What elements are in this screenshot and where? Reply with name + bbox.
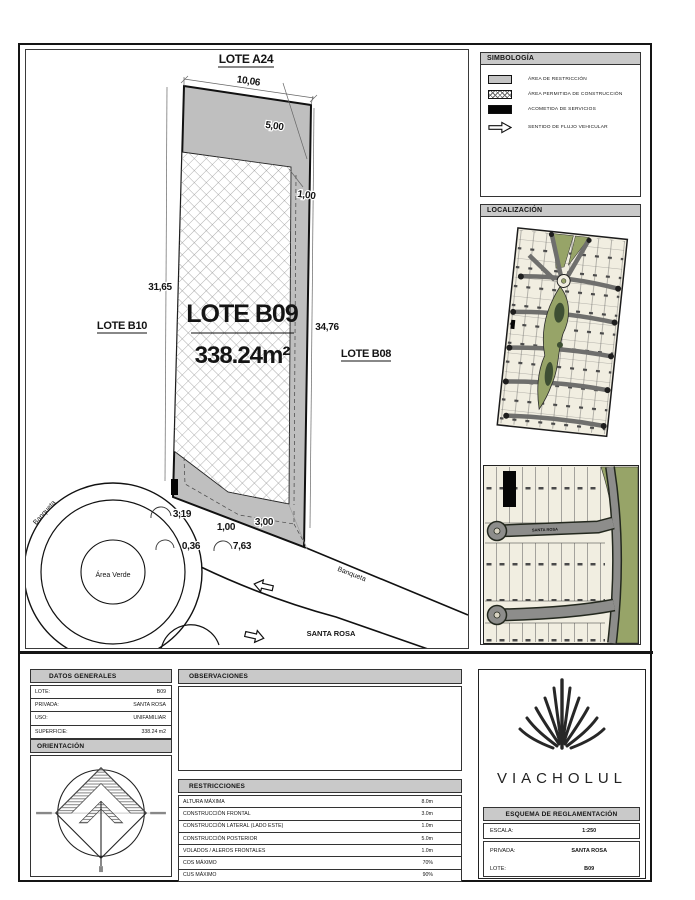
table-row: CONSTRUCCIÓN FRONTAL 3.0m bbox=[179, 808, 461, 820]
row-label: LOTE: bbox=[31, 689, 50, 695]
row-label: LOTE: bbox=[484, 866, 543, 872]
buildable-area-hatch bbox=[174, 152, 291, 504]
adjacent-lot-right-label: LOTE B08 bbox=[341, 348, 391, 360]
sidewalk-label-2: Banqueta bbox=[336, 566, 367, 583]
restriction-area-swatch-icon bbox=[488, 75, 512, 84]
street-name-label: SANTA ROSA bbox=[307, 629, 356, 638]
table-row: CUS MÁXIMO 90% bbox=[179, 870, 461, 881]
row-value: B09 bbox=[543, 866, 636, 872]
row-label: ALTURA MÁXIMA bbox=[179, 799, 225, 805]
table-row: SUPERFICIE: 338.24 m2 bbox=[31, 726, 171, 738]
highlighted-lot-marker bbox=[503, 471, 516, 507]
table-row: ALTURA MÁXIMA 8.0m bbox=[179, 796, 461, 808]
row-label: CONSTRUCCIÓN LATERAL (LADO ESTE) bbox=[179, 823, 283, 829]
site-plan-drawing: LOTE A24 10,06 5,00 1,00 31,65 34,76 LOT… bbox=[26, 50, 468, 648]
legend-item-services: ACOMETIDA DE SERVICIOS bbox=[488, 104, 640, 114]
dimension-b2: 1,00 bbox=[217, 522, 236, 533]
lot-title: LOTE B09 bbox=[186, 300, 298, 328]
dimension-b4: 0,36 bbox=[182, 541, 201, 552]
map-street-label: SANTA ROSA bbox=[532, 527, 558, 533]
row-label: PRIVADA: bbox=[484, 848, 543, 854]
table-row: PRIVADA: SANTA ROSA bbox=[31, 699, 171, 712]
legend-label: SENTIDO DE FLUJO VEHICULAR bbox=[528, 125, 608, 130]
row-value: 70% bbox=[423, 860, 461, 866]
legend-item-construction: ÁREA PERMITIDA DE CONSTRUCCIÓN bbox=[488, 89, 640, 99]
construction-area-swatch-icon bbox=[488, 90, 512, 99]
dimension-b1: 3,19 bbox=[173, 509, 192, 520]
escala-row: ESCALA: 1:250 bbox=[483, 823, 640, 839]
street-edge-top bbox=[304, 547, 468, 615]
row-value: 1.0m bbox=[421, 848, 461, 854]
legend-label: ACOMETIDA DE SERVICIOS bbox=[528, 107, 596, 112]
orientacion-panel bbox=[30, 755, 172, 877]
row-value: 8.0m bbox=[421, 799, 461, 805]
legend-item-flow: SENTIDO DE FLUJO VEHICULAR bbox=[488, 122, 640, 132]
north-compass bbox=[31, 756, 171, 876]
datos-generales-table: LOTE: B09 PRIVADA: SANTA ROSA USO: UNIFA… bbox=[30, 685, 172, 739]
legend-label: ÁREA PERMITIDA DE CONSTRUCCIÓN bbox=[528, 92, 623, 97]
localizacion-panel: SANTA ROSA bbox=[480, 216, 641, 645]
localizacion-map-zoom: SANTA ROSA bbox=[483, 465, 639, 644]
row-label: PRIVADA: bbox=[31, 702, 59, 708]
dimension-east-side: 34,76 bbox=[315, 322, 339, 333]
row-value: 5.0m bbox=[421, 836, 461, 842]
dimension-west-side: 31,65 bbox=[148, 282, 172, 293]
lote-row: LOTE: B09 bbox=[484, 860, 639, 877]
row-label: CONSTRUCCIÓN FRONTAL bbox=[179, 811, 251, 817]
restricciones-table: ALTURA MÁXIMA 8.0m CONSTRUCCIÓN FRONTAL … bbox=[178, 795, 462, 882]
section-divider bbox=[18, 651, 653, 654]
dimension-b3: 3,00 bbox=[255, 517, 274, 528]
viacholul-logo-icon bbox=[507, 674, 617, 766]
row-value: 3.0m bbox=[421, 811, 461, 817]
title-block: VIACHOLUL ESQUEMA DE REGLAMENTACIÓN ESCA… bbox=[478, 669, 646, 879]
table-row: CONSTRUCCIÓN LATERAL (LADO ESTE) 1.0m bbox=[179, 821, 461, 833]
table-row: LOTE: B09 bbox=[31, 686, 171, 699]
table-row: CONSTRUCCIÓN POSTERIOR 5.0m bbox=[179, 833, 461, 845]
privada-lote-box: PRIVADA: SANTA ROSA LOTE: B09 bbox=[483, 841, 640, 877]
table-row: VOLADOS / ALEROS FRONTALES 1.0m bbox=[179, 845, 461, 857]
table-row: USO: UNIFAMILIAR bbox=[31, 712, 171, 725]
datos-generales-header: DATOS GENERALES bbox=[30, 669, 172, 683]
row-value: 90% bbox=[423, 872, 461, 878]
lot-area-label: 338.24m² bbox=[195, 342, 291, 369]
dimension-front: 10,06 bbox=[236, 74, 262, 88]
row-value: 1.0m bbox=[421, 823, 461, 829]
simbologia-panel: ÁREA DE RESTRICCIÓN ÁREA PERMITIDA DE CO… bbox=[480, 64, 641, 197]
legend-item-restriction: ÁREA DE RESTRICCIÓN bbox=[488, 74, 640, 84]
row-label: SUPERFICIE: bbox=[31, 729, 68, 735]
row-value: 1:250 bbox=[543, 828, 636, 834]
flow-arrow-left bbox=[253, 578, 274, 594]
localizacion-map-master bbox=[491, 225, 631, 445]
privada-row: PRIVADA: SANTA ROSA bbox=[484, 842, 639, 860]
esquema-header: ESQUEMA DE REGLAMENTACIÓN bbox=[483, 807, 640, 821]
site-plan-panel: LOTE A24 10,06 5,00 1,00 31,65 34,76 LOT… bbox=[25, 49, 469, 649]
flow-arrow-right bbox=[244, 628, 265, 644]
observaciones-body bbox=[178, 686, 462, 771]
row-label: VOLADOS / ALEROS FRONTALES bbox=[179, 848, 265, 854]
legend-label: ÁREA DE RESTRICCIÓN bbox=[528, 77, 587, 82]
table-row: COS MÁXIMO 70% bbox=[179, 857, 461, 869]
plan-sheet: LOTE A24 10,06 5,00 1,00 31,65 34,76 LOT… bbox=[0, 0, 695, 900]
row-label: CUS MÁXIMO bbox=[179, 872, 216, 878]
green-area-label: Área Verde bbox=[95, 570, 130, 579]
row-value: SANTA ROSA bbox=[133, 702, 171, 708]
orientacion-header: ORIENTACIÓN bbox=[30, 739, 172, 753]
vehicle-flow-arrow-icon bbox=[488, 121, 512, 134]
observaciones-header: OBSERVACIONES bbox=[178, 669, 462, 684]
services-connection-mark bbox=[171, 479, 178, 495]
row-label: COS MÁXIMO bbox=[179, 860, 217, 866]
adjacent-lot-left-label: LOTE B10 bbox=[97, 320, 147, 332]
adjacent-lot-top-label: LOTE A24 bbox=[219, 52, 274, 66]
row-label: ESCALA: bbox=[484, 828, 543, 834]
row-value: SANTA ROSA bbox=[543, 848, 636, 854]
services-connection-swatch-icon bbox=[488, 105, 512, 114]
brand-wordmark: VIACHOLUL bbox=[479, 770, 645, 787]
row-value: B09 bbox=[157, 689, 171, 695]
row-value: UNIFAMILIAR bbox=[133, 715, 171, 721]
row-label: CONSTRUCCIÓN POSTERIOR bbox=[179, 836, 257, 842]
row-label: USO: bbox=[31, 715, 48, 721]
restricciones-header: RESTRICCIONES bbox=[178, 779, 462, 793]
green-area-roundabout bbox=[26, 483, 219, 648]
row-value: 338.24 m2 bbox=[141, 729, 171, 735]
dimension-b5: 7,63 bbox=[233, 541, 252, 552]
